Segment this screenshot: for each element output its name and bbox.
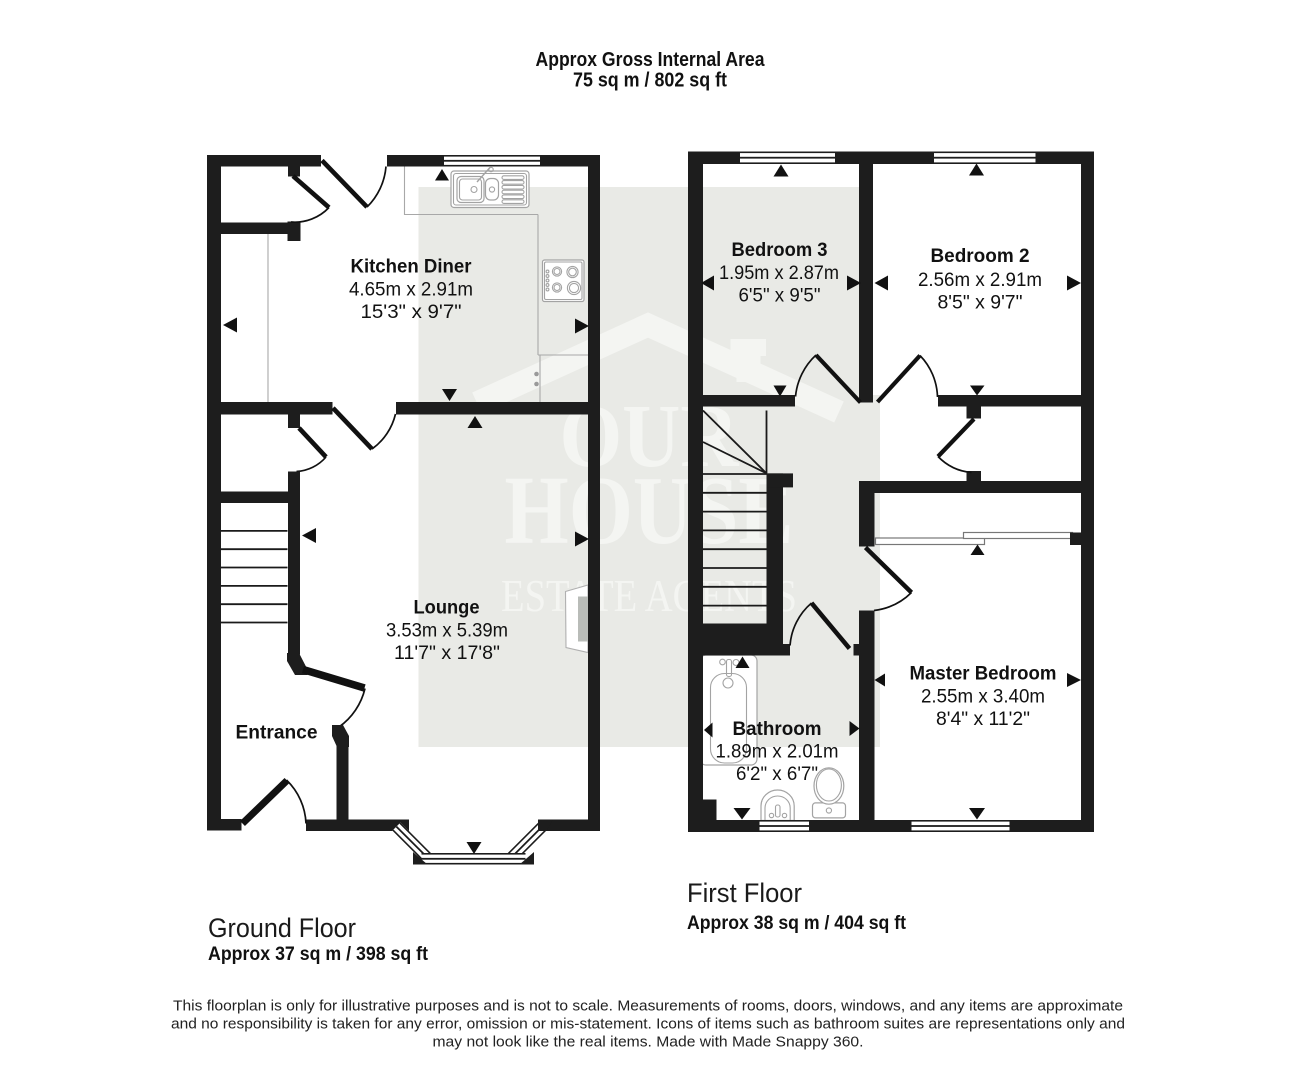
svg-text:15'3" x 9'7": 15'3" x 9'7" [361, 302, 462, 323]
svg-text:1.89m x 2.01m: 1.89m x 2.01m [716, 742, 839, 763]
svg-text:8'4" x 11'2": 8'4" x 11'2" [936, 709, 1030, 730]
svg-text:Lounge: Lounge [414, 598, 480, 619]
svg-text:75 sq m / 802 sq ft: 75 sq m / 802 sq ft [573, 69, 727, 92]
svg-text:11'7" x 17'8": 11'7" x 17'8" [394, 643, 500, 664]
svg-text:2.55m x 3.40m: 2.55m x 3.40m [921, 687, 1045, 708]
svg-text:Kitchen Diner: Kitchen Diner [351, 257, 473, 278]
svg-text:ESTATE AGENTS: ESTATE AGENTS [501, 571, 797, 621]
svg-text:Approx 38 sq m / 404 sq ft: Approx 38 sq m / 404 sq ft [687, 913, 907, 934]
svg-text:6'5" x 9'5": 6'5" x 9'5" [739, 286, 821, 307]
svg-text:6'2" x 6'7": 6'2" x 6'7" [736, 764, 818, 785]
svg-text:Entrance: Entrance [236, 723, 318, 744]
svg-text:3.53m x 5.39m: 3.53m x 5.39m [386, 621, 508, 642]
svg-text:This floorplan is only for ill: This floorplan is only for illustrative … [173, 998, 1123, 1015]
svg-text:2.56m x 2.91m: 2.56m x 2.91m [918, 270, 1042, 291]
svg-text:4.65m x 2.91m: 4.65m x 2.91m [349, 280, 473, 301]
svg-text:8'5" x 9'7": 8'5" x 9'7" [938, 293, 1023, 314]
svg-text:may not look like the real ite: may not look like the real items. Made w… [433, 1034, 864, 1051]
svg-text:1.95m x 2.87m: 1.95m x 2.87m [719, 263, 839, 284]
svg-text:Ground Floor: Ground Floor [208, 913, 356, 943]
svg-text:Bedroom 2: Bedroom 2 [931, 246, 1030, 267]
svg-text:First Floor: First Floor [687, 878, 802, 908]
svg-text:HOUSE: HOUSE [505, 457, 794, 564]
svg-text:Master Bedroom: Master Bedroom [910, 664, 1057, 685]
svg-text:Bathroom: Bathroom [733, 719, 822, 740]
svg-text:and no responsibility is taken: and no responsibility is taken for any e… [171, 1016, 1125, 1033]
svg-text:Approx 37 sq m / 398 sq ft: Approx 37 sq m / 398 sq ft [208, 944, 429, 965]
svg-text:Bedroom 3: Bedroom 3 [732, 240, 828, 261]
